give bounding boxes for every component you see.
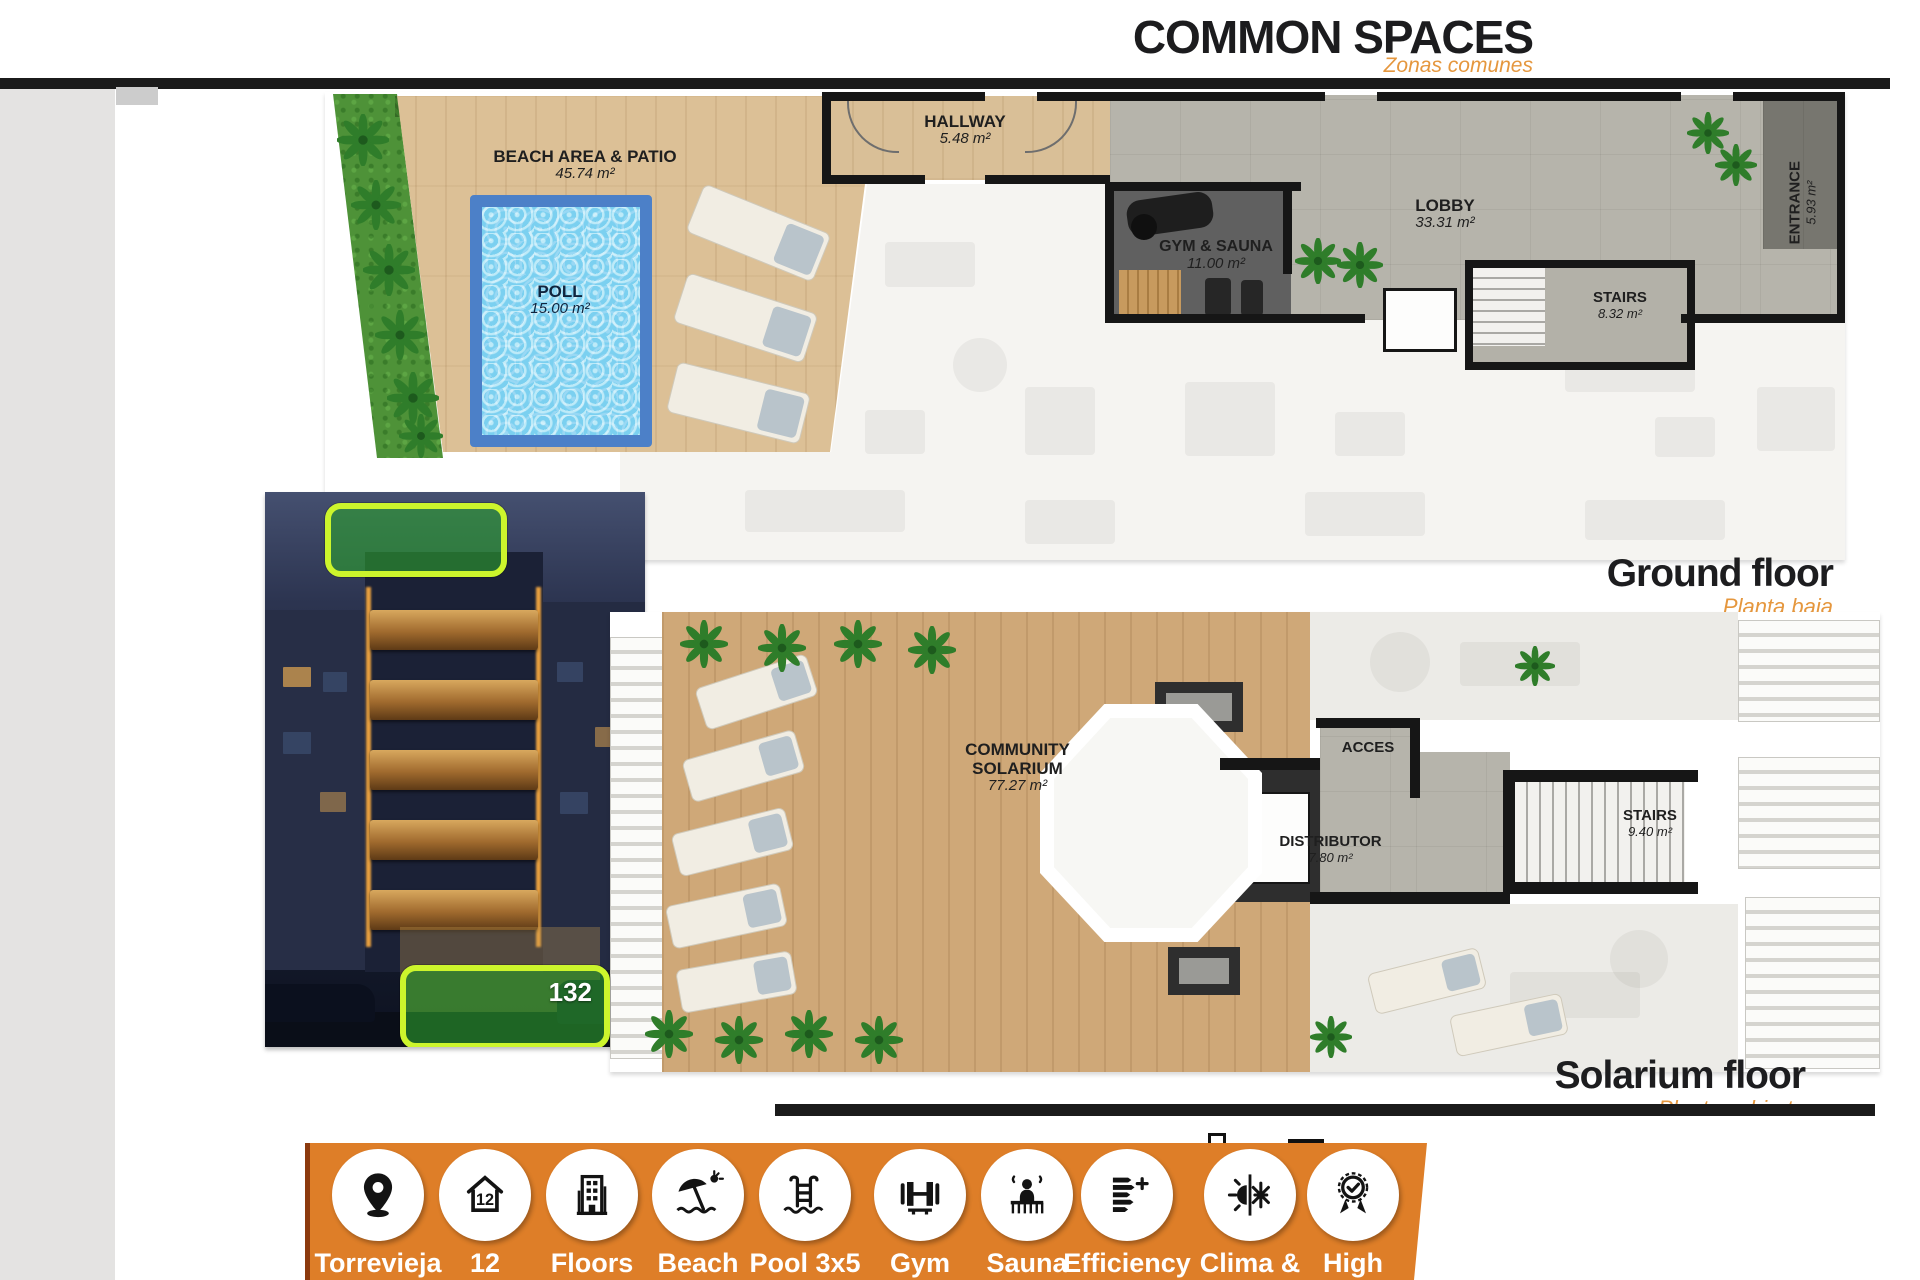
- room-label-hallway: HALLWAY 5.48 m²: [885, 112, 1045, 148]
- feature-circle: [1081, 1149, 1173, 1241]
- feature-quality: High quality: [1288, 1149, 1418, 1280]
- feature-circle: [652, 1149, 744, 1241]
- wall: [825, 92, 985, 101]
- wall: [1503, 770, 1515, 894]
- room-label-stairs: STAIRS 8.32 m²: [1565, 290, 1675, 321]
- svg-text:12: 12: [476, 1191, 494, 1209]
- barbell-icon: [894, 1169, 946, 1221]
- pergola-slats: [1738, 620, 1880, 722]
- furniture-outline: [865, 410, 925, 454]
- sauna-icon: [1001, 1169, 1053, 1221]
- furniture-outline: [1757, 387, 1835, 451]
- gym-equipment: [1241, 280, 1263, 316]
- palm-tree-icon: [1295, 238, 1341, 284]
- palm-tree-icon: [337, 114, 389, 166]
- room-label-community-solarium: COMMUNITY SOLARIUM 77.27 m²: [950, 740, 1085, 795]
- pergola-slats: [610, 637, 664, 1059]
- pool: [470, 195, 652, 447]
- gym-equipment: [1205, 278, 1231, 316]
- room-label-gym: GYM & SAUNA 11.00 m²: [1151, 238, 1281, 273]
- wall: [822, 175, 925, 184]
- award-icon: [1327, 1169, 1379, 1221]
- balcony: [370, 680, 538, 720]
- landing: [1416, 752, 1510, 902]
- wall: [1220, 758, 1320, 770]
- palm-tree-icon: [1515, 646, 1555, 686]
- room-label-distributor: DISTRIBUTOR 7.80 m²: [1258, 834, 1403, 865]
- wall: [1105, 314, 1365, 323]
- palm-tree-icon: [758, 624, 806, 672]
- palm-tree-icon: [399, 414, 443, 458]
- feature-banner: Torrevieja (Alicante) 12 12 Apartments: [305, 1143, 1485, 1280]
- furniture-outline: [1335, 412, 1405, 456]
- feature-circle: [1204, 1149, 1296, 1241]
- furniture-outline: [953, 338, 1007, 392]
- stair-treads: [1473, 268, 1545, 346]
- dark-window: [283, 732, 311, 754]
- banner-left-edge: [305, 1143, 310, 1280]
- feature-pool: Pool 3x5 15 m²: [740, 1149, 870, 1280]
- ground-floor-caption: Ground floor Planta baja: [1500, 554, 1833, 618]
- feature-circle: [981, 1149, 1073, 1241]
- exercise-bike-wheel: [1131, 214, 1157, 240]
- palm-tree-icon: [680, 620, 728, 668]
- pergola-slats: [1745, 897, 1880, 1069]
- ground-floor-plan: BEACH AREA & PATIO 45.74 m² POLL 15.00 m…: [325, 92, 1845, 560]
- feature-efficiency: Efficiency A+: [1062, 1149, 1192, 1280]
- feature-circle: [874, 1149, 966, 1241]
- palm-tree-icon: [351, 180, 401, 230]
- furniture-outline: [1025, 387, 1095, 455]
- feature-circle: [1307, 1149, 1399, 1241]
- palm-tree-icon: [908, 626, 956, 674]
- palm-tree-icon: [1337, 242, 1383, 288]
- rooftop-highlight: [325, 503, 507, 577]
- solarium-floor-plan: COMMUNITY SOLARIUM 77.27 m² ACCES DISTRI…: [610, 612, 1880, 1072]
- wall: [1377, 92, 1681, 101]
- building-left: [265, 610, 369, 970]
- bottom-black-bar: [775, 1104, 1875, 1116]
- wall: [822, 92, 831, 184]
- palm-tree-icon: [375, 310, 425, 360]
- wall: [1508, 882, 1698, 894]
- feature-circle: [332, 1149, 424, 1241]
- dark-window: [560, 792, 588, 814]
- lit-window: [283, 667, 311, 687]
- feature-circle: [759, 1149, 851, 1241]
- balcony: [370, 890, 538, 930]
- sauna-bench: [1119, 270, 1181, 316]
- palm-tree-icon: [785, 1010, 833, 1058]
- wall: [1681, 314, 1845, 323]
- unit-badge: 132: [549, 977, 592, 1008]
- lit-window: [320, 792, 346, 812]
- beach-umbrella-icon: [672, 1169, 724, 1221]
- page-subtitle: Zonas comunes: [1100, 54, 1533, 78]
- balcony: [370, 820, 538, 860]
- pool-ladder-icon: [779, 1169, 831, 1221]
- dark-window: [557, 662, 583, 682]
- room-label-acces: ACCES: [1316, 740, 1420, 757]
- feature-circle: 12: [439, 1149, 531, 1241]
- pergola-slats: [1738, 757, 1880, 869]
- elevator: [1383, 288, 1457, 352]
- palm-tree-icon: [715, 1016, 763, 1064]
- room-label-stairs-solarium: STAIRS 9.40 m²: [1595, 808, 1705, 839]
- palm-tree-icon: [1715, 144, 1757, 186]
- skylight-box: [1168, 947, 1240, 995]
- furniture-outline: [1370, 632, 1430, 692]
- house-12-icon: 12: [459, 1169, 511, 1221]
- balcony: [370, 750, 538, 790]
- palm-tree-icon: [645, 1010, 693, 1058]
- furniture-outline: [1185, 382, 1275, 456]
- feature-circle: [546, 1149, 638, 1241]
- wall: [1037, 92, 1325, 101]
- efficiency-icon: [1101, 1169, 1153, 1221]
- furniture-outline: [1655, 417, 1715, 457]
- room-label-beach: BEACH AREA & PATIO 45.74 m²: [485, 147, 685, 183]
- wall: [1316, 718, 1420, 728]
- wall: [985, 175, 1110, 184]
- furniture-outline: [745, 490, 905, 532]
- building-icon: [566, 1169, 618, 1221]
- wall: [1508, 770, 1698, 782]
- wall: [1283, 182, 1292, 274]
- location-pin-icon: [352, 1169, 404, 1221]
- wall: [1410, 718, 1420, 798]
- palm-tree-icon: [363, 244, 415, 296]
- climate-icon: [1224, 1169, 1276, 1221]
- dark-window: [323, 672, 347, 692]
- room-label-lobby: LOBBY 33.31 m²: [1380, 196, 1510, 232]
- balcony: [370, 610, 538, 650]
- wall: [1837, 92, 1845, 322]
- room-label-pool: POLL 15.00 m²: [490, 282, 630, 318]
- furniture-outline: [885, 242, 975, 287]
- groundfloor-highlight: 132: [400, 965, 610, 1047]
- palm-tree-icon: [855, 1016, 903, 1064]
- wall: [1105, 182, 1114, 322]
- left-gray-rail: [0, 89, 115, 1280]
- palm-tree-icon: [1310, 1016, 1352, 1058]
- building-photo: 132: [265, 492, 645, 1047]
- furniture-outline: [1025, 500, 1115, 544]
- furniture-outline: [1305, 492, 1425, 536]
- room-label-entrance: ENTRANCE 5.93 m²: [1787, 133, 1818, 273]
- top-black-bar: [0, 78, 1890, 89]
- skylight-glass: [1179, 958, 1229, 984]
- brochure-page: COMMON SPACES Zonas comunes: [0, 0, 1920, 1280]
- wall: [1310, 892, 1510, 904]
- gray-notch: [116, 87, 158, 105]
- wall: [1105, 182, 1301, 191]
- wall: [1733, 92, 1845, 101]
- car-silhouette: [265, 984, 375, 1022]
- palm-tree-icon: [834, 620, 882, 668]
- furniture-outline: [1585, 500, 1725, 540]
